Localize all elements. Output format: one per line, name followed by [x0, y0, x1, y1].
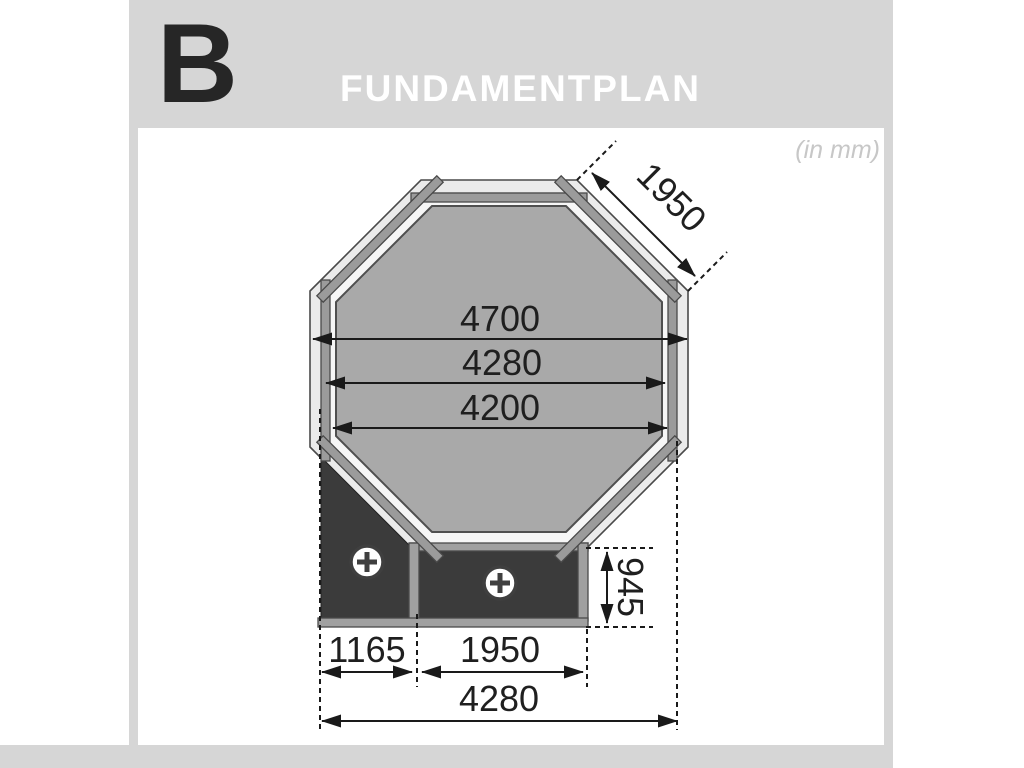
- dim-terrace-total: 4280: [322, 678, 677, 721]
- beam-right: [668, 280, 677, 461]
- terrace-divider-beam: [409, 543, 419, 621]
- extension-line-side-bottom: [688, 252, 727, 291]
- dim-terrace-middle-label: 1950: [460, 629, 540, 670]
- dim-wall-width-label: 4280: [462, 342, 542, 383]
- dim-terrace-total-label: 4280: [459, 678, 539, 719]
- dim-terrace-middle: 1950: [422, 629, 583, 672]
- page: B FUNDAMENTPLAN (in mm): [0, 0, 1024, 768]
- extension-line-side-top: [577, 141, 616, 180]
- foundation-plan-diagram: 1950 4700 4280 4200 945 1165: [0, 0, 1024, 768]
- dim-outer-width-label: 4700: [460, 298, 540, 339]
- dim-side-length-label: 1950: [629, 154, 715, 240]
- terrace-bottom-beam: [318, 618, 588, 627]
- dim-terrace-left-label: 1165: [328, 629, 405, 670]
- dim-inner-width-label: 4200: [460, 387, 540, 428]
- circle-plus-anchor-icon: [351, 546, 383, 578]
- terrace-right-beam: [578, 543, 588, 621]
- circle-plus-anchor-icon: [484, 567, 516, 599]
- dim-terrace-left: 1165: [322, 629, 412, 672]
- beam-top: [411, 193, 587, 202]
- dim-terrace-depth: 945: [607, 552, 651, 623]
- dim-terrace-depth-label: 945: [610, 557, 651, 617]
- beam-left: [321, 280, 330, 461]
